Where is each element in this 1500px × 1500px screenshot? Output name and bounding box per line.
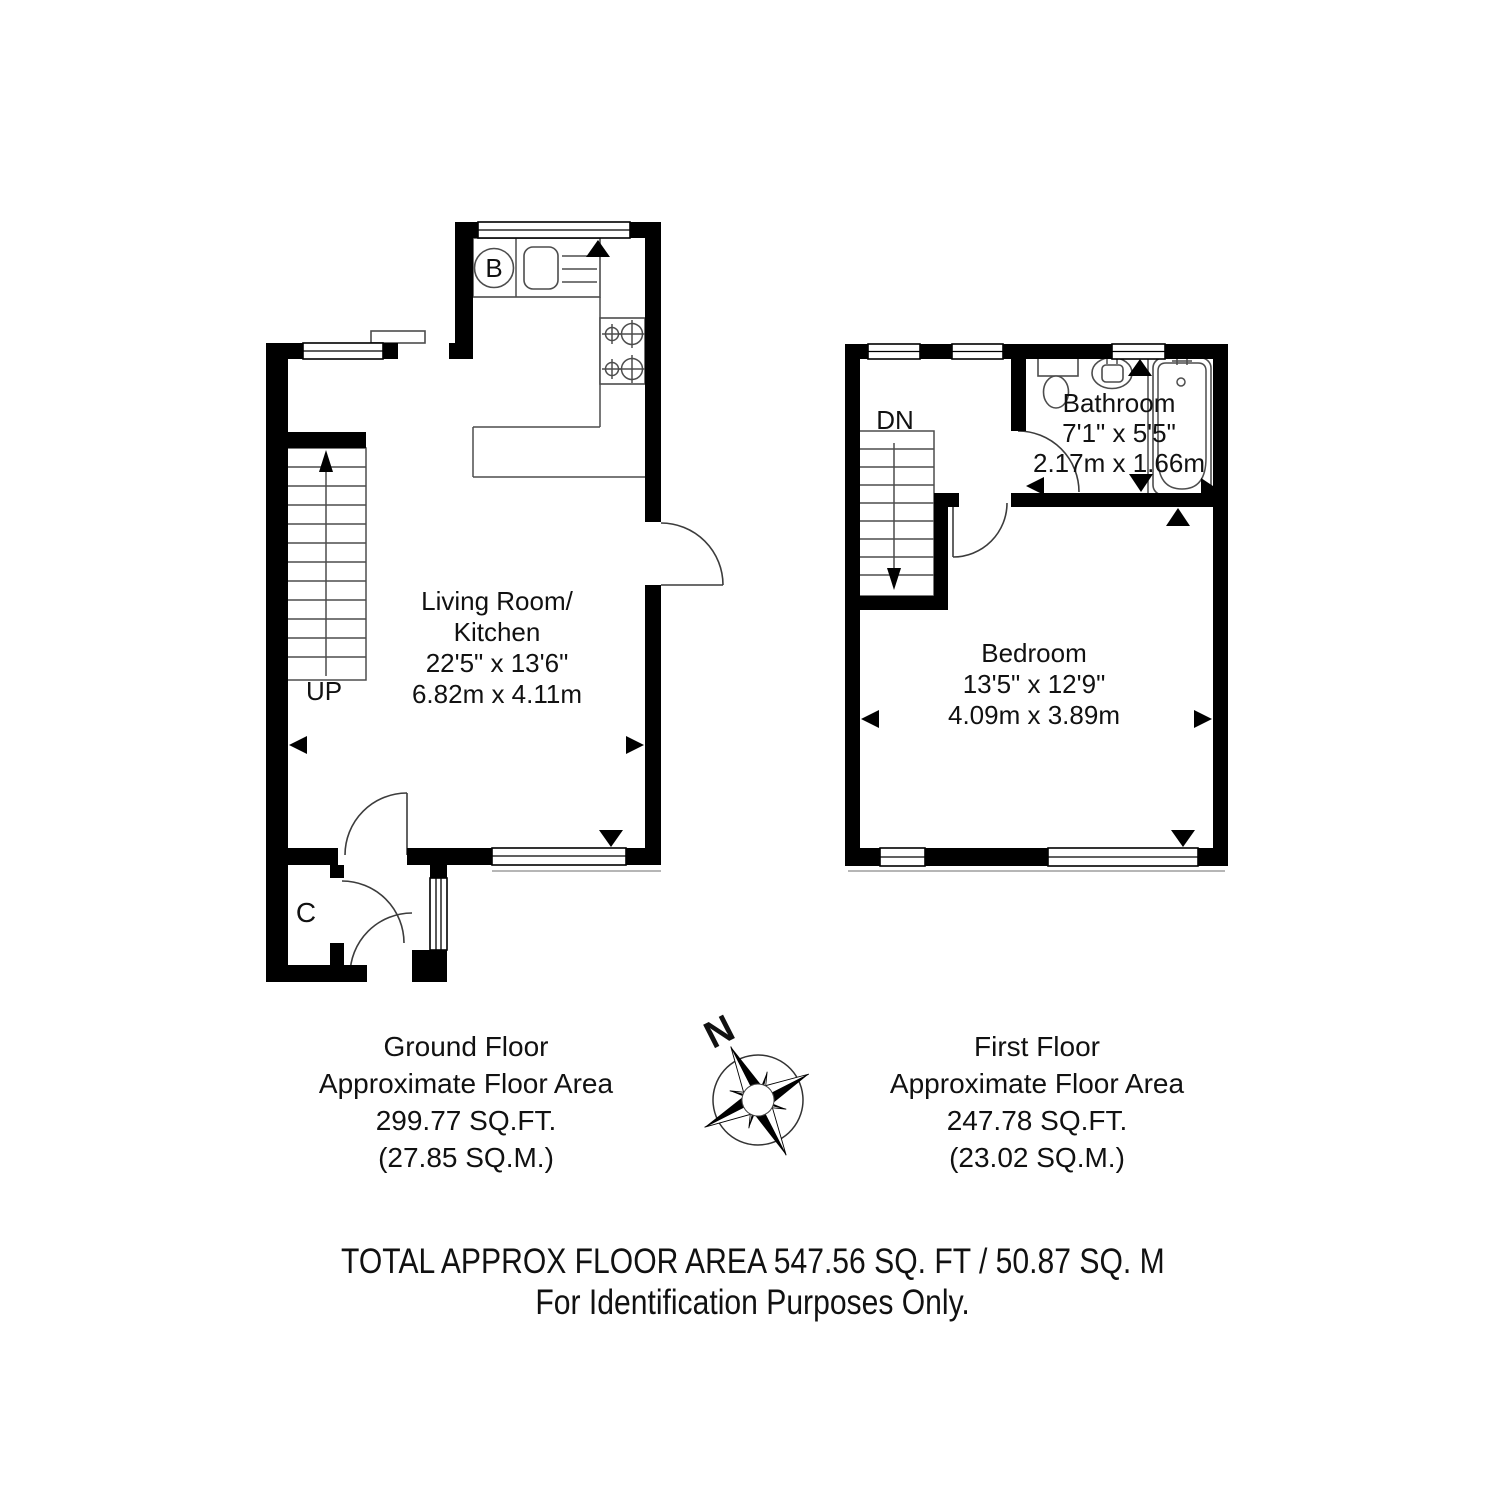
- footer-total-line: TOTAL APPROX FLOOR AREA 547.56 SQ. FT / …: [341, 1241, 1165, 1282]
- room-name-line: Living Room/: [377, 586, 617, 617]
- living-room-kitchen-label: Living Room/ Kitchen 22'5" x 13'6" 6.82m…: [377, 586, 617, 710]
- footer-disclaimer-line: For Identification Purposes Only.: [536, 1282, 970, 1323]
- caption-line: 247.78 SQ.FT.: [857, 1102, 1217, 1139]
- floorplan-page: B UP: [0, 0, 1500, 1500]
- boiler: B: [475, 249, 514, 288]
- arrow-left-icon: [289, 736, 307, 754]
- arrow-right-icon: [626, 736, 644, 754]
- stairs-down: DN: [855, 405, 934, 596]
- bedroom-label: Bedroom 13'5" x 12'9" 4.09m x 3.89m: [914, 638, 1154, 731]
- room-dim-metric: 6.82m x 4.11m: [377, 679, 617, 710]
- caption-line: 299.77 SQ.FT.: [286, 1102, 646, 1139]
- room-dim-imperial: 22'5" x 13'6": [377, 648, 617, 679]
- stairs-up-label: UP: [306, 676, 342, 706]
- room-dim-metric: 4.09m x 3.89m: [914, 700, 1154, 731]
- stairs-down-arrow-icon: [887, 568, 901, 590]
- caption-line: Approximate Floor Area: [857, 1065, 1217, 1102]
- caption-line: (27.85 SQ.M.): [286, 1139, 646, 1176]
- stairs-up-arrow-icon: [319, 450, 333, 472]
- living-room-side-door-arc: [661, 523, 723, 585]
- arrow-left-icon: [861, 710, 879, 728]
- arrow-down-icon: [599, 830, 623, 847]
- room-name: Bathroom: [1000, 388, 1238, 418]
- room-dim-imperial: 13'5" x 12'9": [914, 669, 1154, 700]
- arrow-right-icon: [1194, 710, 1212, 728]
- caption-line: Ground Floor: [286, 1028, 646, 1065]
- caption-line: First Floor: [857, 1028, 1217, 1065]
- compass-north-label: N: [698, 1007, 742, 1057]
- room-dim-metric: 2.17m x 1.66m: [1000, 448, 1238, 478]
- hall-door-arc: [345, 793, 407, 855]
- arrow-up-icon: [1166, 508, 1190, 526]
- cupboard-door-arc: [342, 881, 404, 943]
- total-area-footer: TOTAL APPROX FLOOR AREA 547.56 SQ. FT / …: [150, 1241, 1356, 1323]
- stairs-up: UP: [287, 448, 366, 706]
- caption-line: (23.02 SQ.M.): [857, 1139, 1217, 1176]
- ground-floor-caption: Ground Floor Approximate Floor Area 299.…: [286, 1028, 646, 1176]
- boiler-label: B: [485, 253, 502, 283]
- arrow-left-icon: [1026, 477, 1044, 495]
- basin: [1092, 356, 1132, 389]
- room-dim-imperial: 7'1" x 5'5": [1000, 418, 1238, 448]
- arrow-down-icon: [1171, 830, 1195, 847]
- bedroom-door-arc: [953, 503, 1007, 557]
- compass-rose: N: [677, 1007, 837, 1182]
- cupboard-label: C: [296, 897, 316, 928]
- side-door-leaf: [371, 331, 425, 343]
- stairs-down-label: DN: [876, 405, 914, 435]
- caption-line: Approximate Floor Area: [286, 1065, 646, 1102]
- room-name: Bedroom: [914, 638, 1154, 669]
- room-name-line: Kitchen: [377, 617, 617, 648]
- first-floor-caption: First Floor Approximate Floor Area 247.7…: [857, 1028, 1217, 1176]
- bathroom-label: Bathroom 7'1" x 5'5" 2.17m x 1.66m: [1000, 388, 1238, 478]
- hob: [600, 318, 646, 384]
